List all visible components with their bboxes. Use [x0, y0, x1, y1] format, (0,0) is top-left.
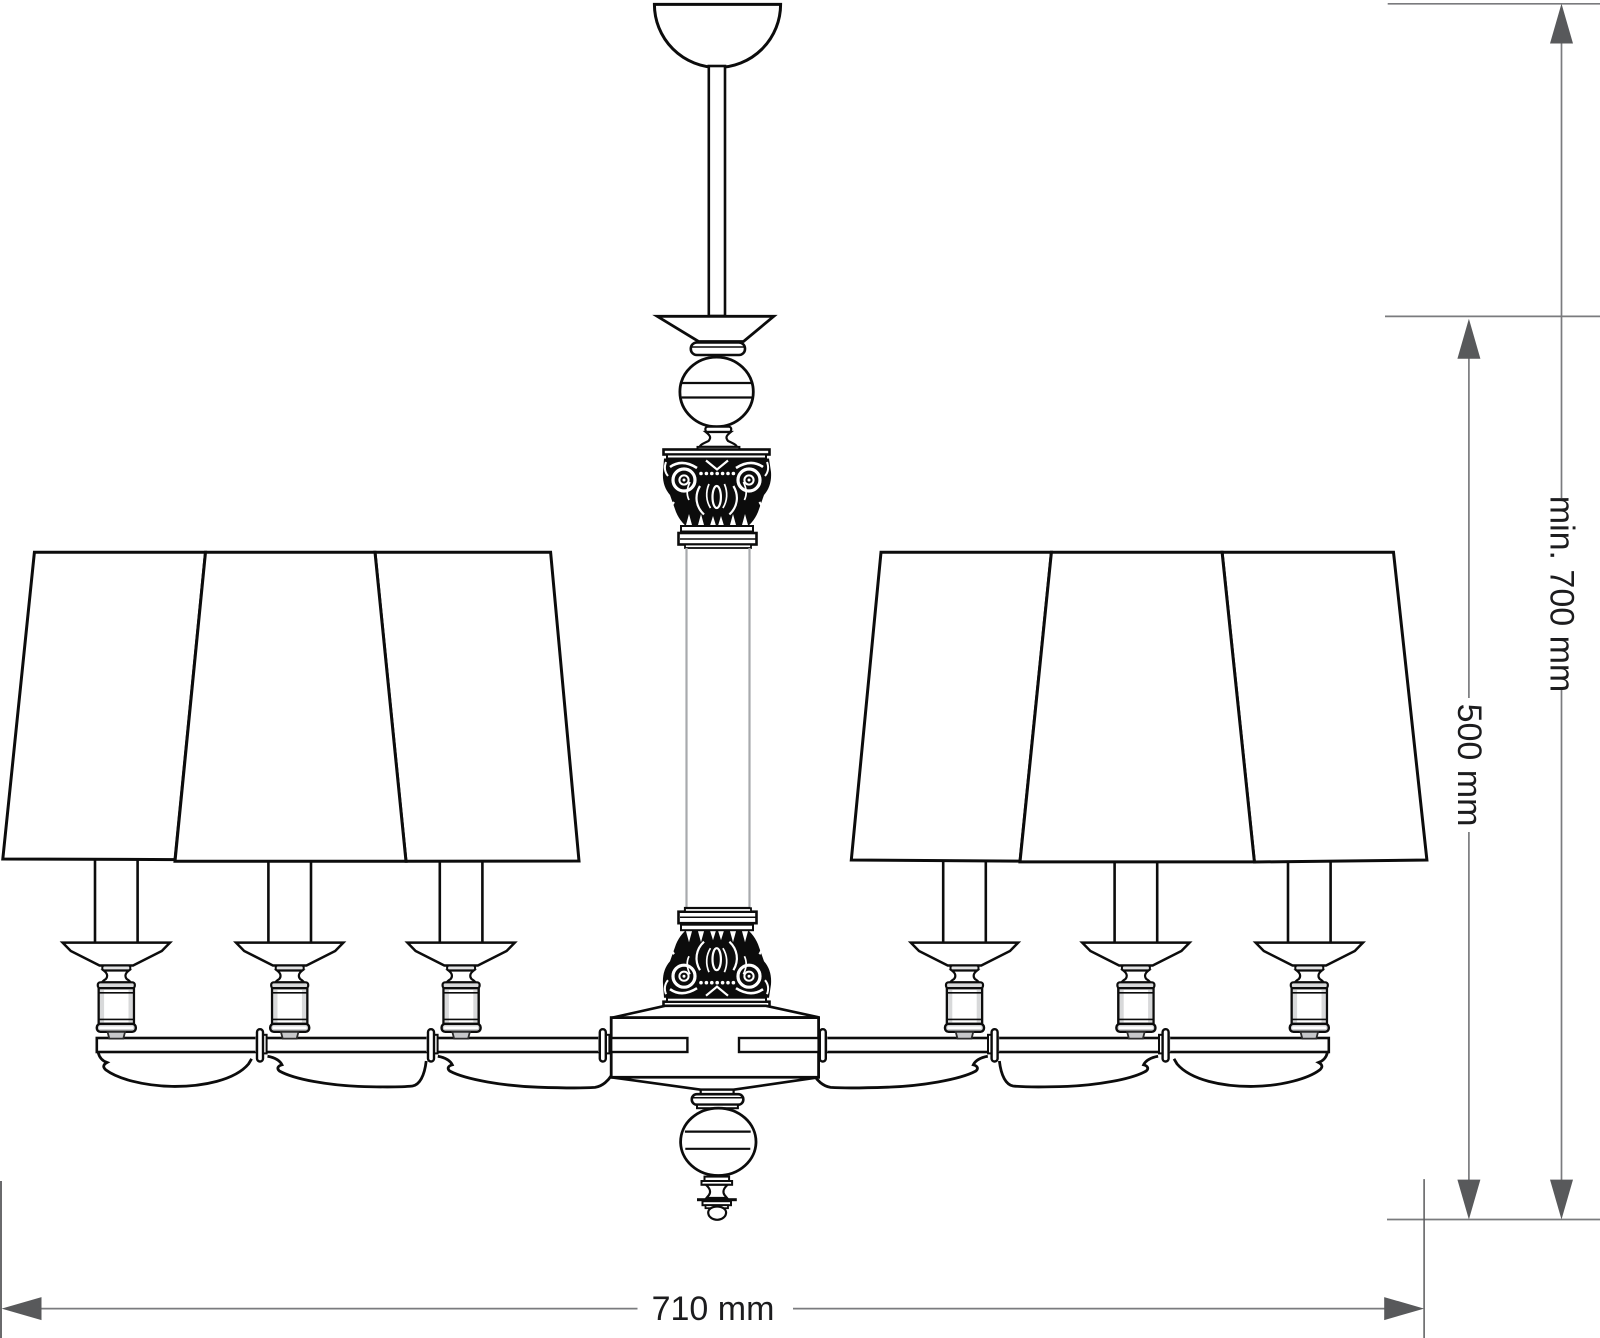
- svg-text:500 mm: 500 mm: [1450, 704, 1488, 827]
- svg-text:710 mm: 710 mm: [652, 1290, 775, 1328]
- svg-text:min. 700 mm: min. 700 mm: [1543, 496, 1581, 693]
